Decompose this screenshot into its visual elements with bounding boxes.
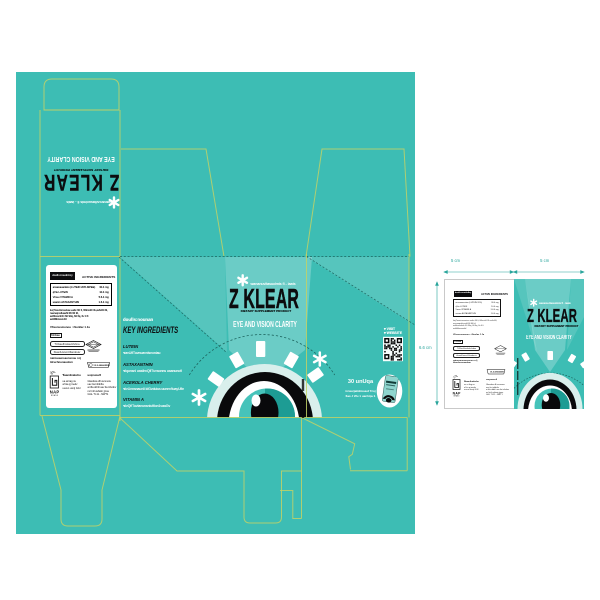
svg-text:1X-5-0866655X1: 1X-5-0866655X1: [93, 365, 110, 367]
svg-text:NAP: NAP: [453, 392, 462, 396]
svg-text:NAP: NAP: [50, 389, 60, 394]
svg-text:1X-5-0866655X1: 1X-5-0866655X1: [490, 372, 504, 374]
